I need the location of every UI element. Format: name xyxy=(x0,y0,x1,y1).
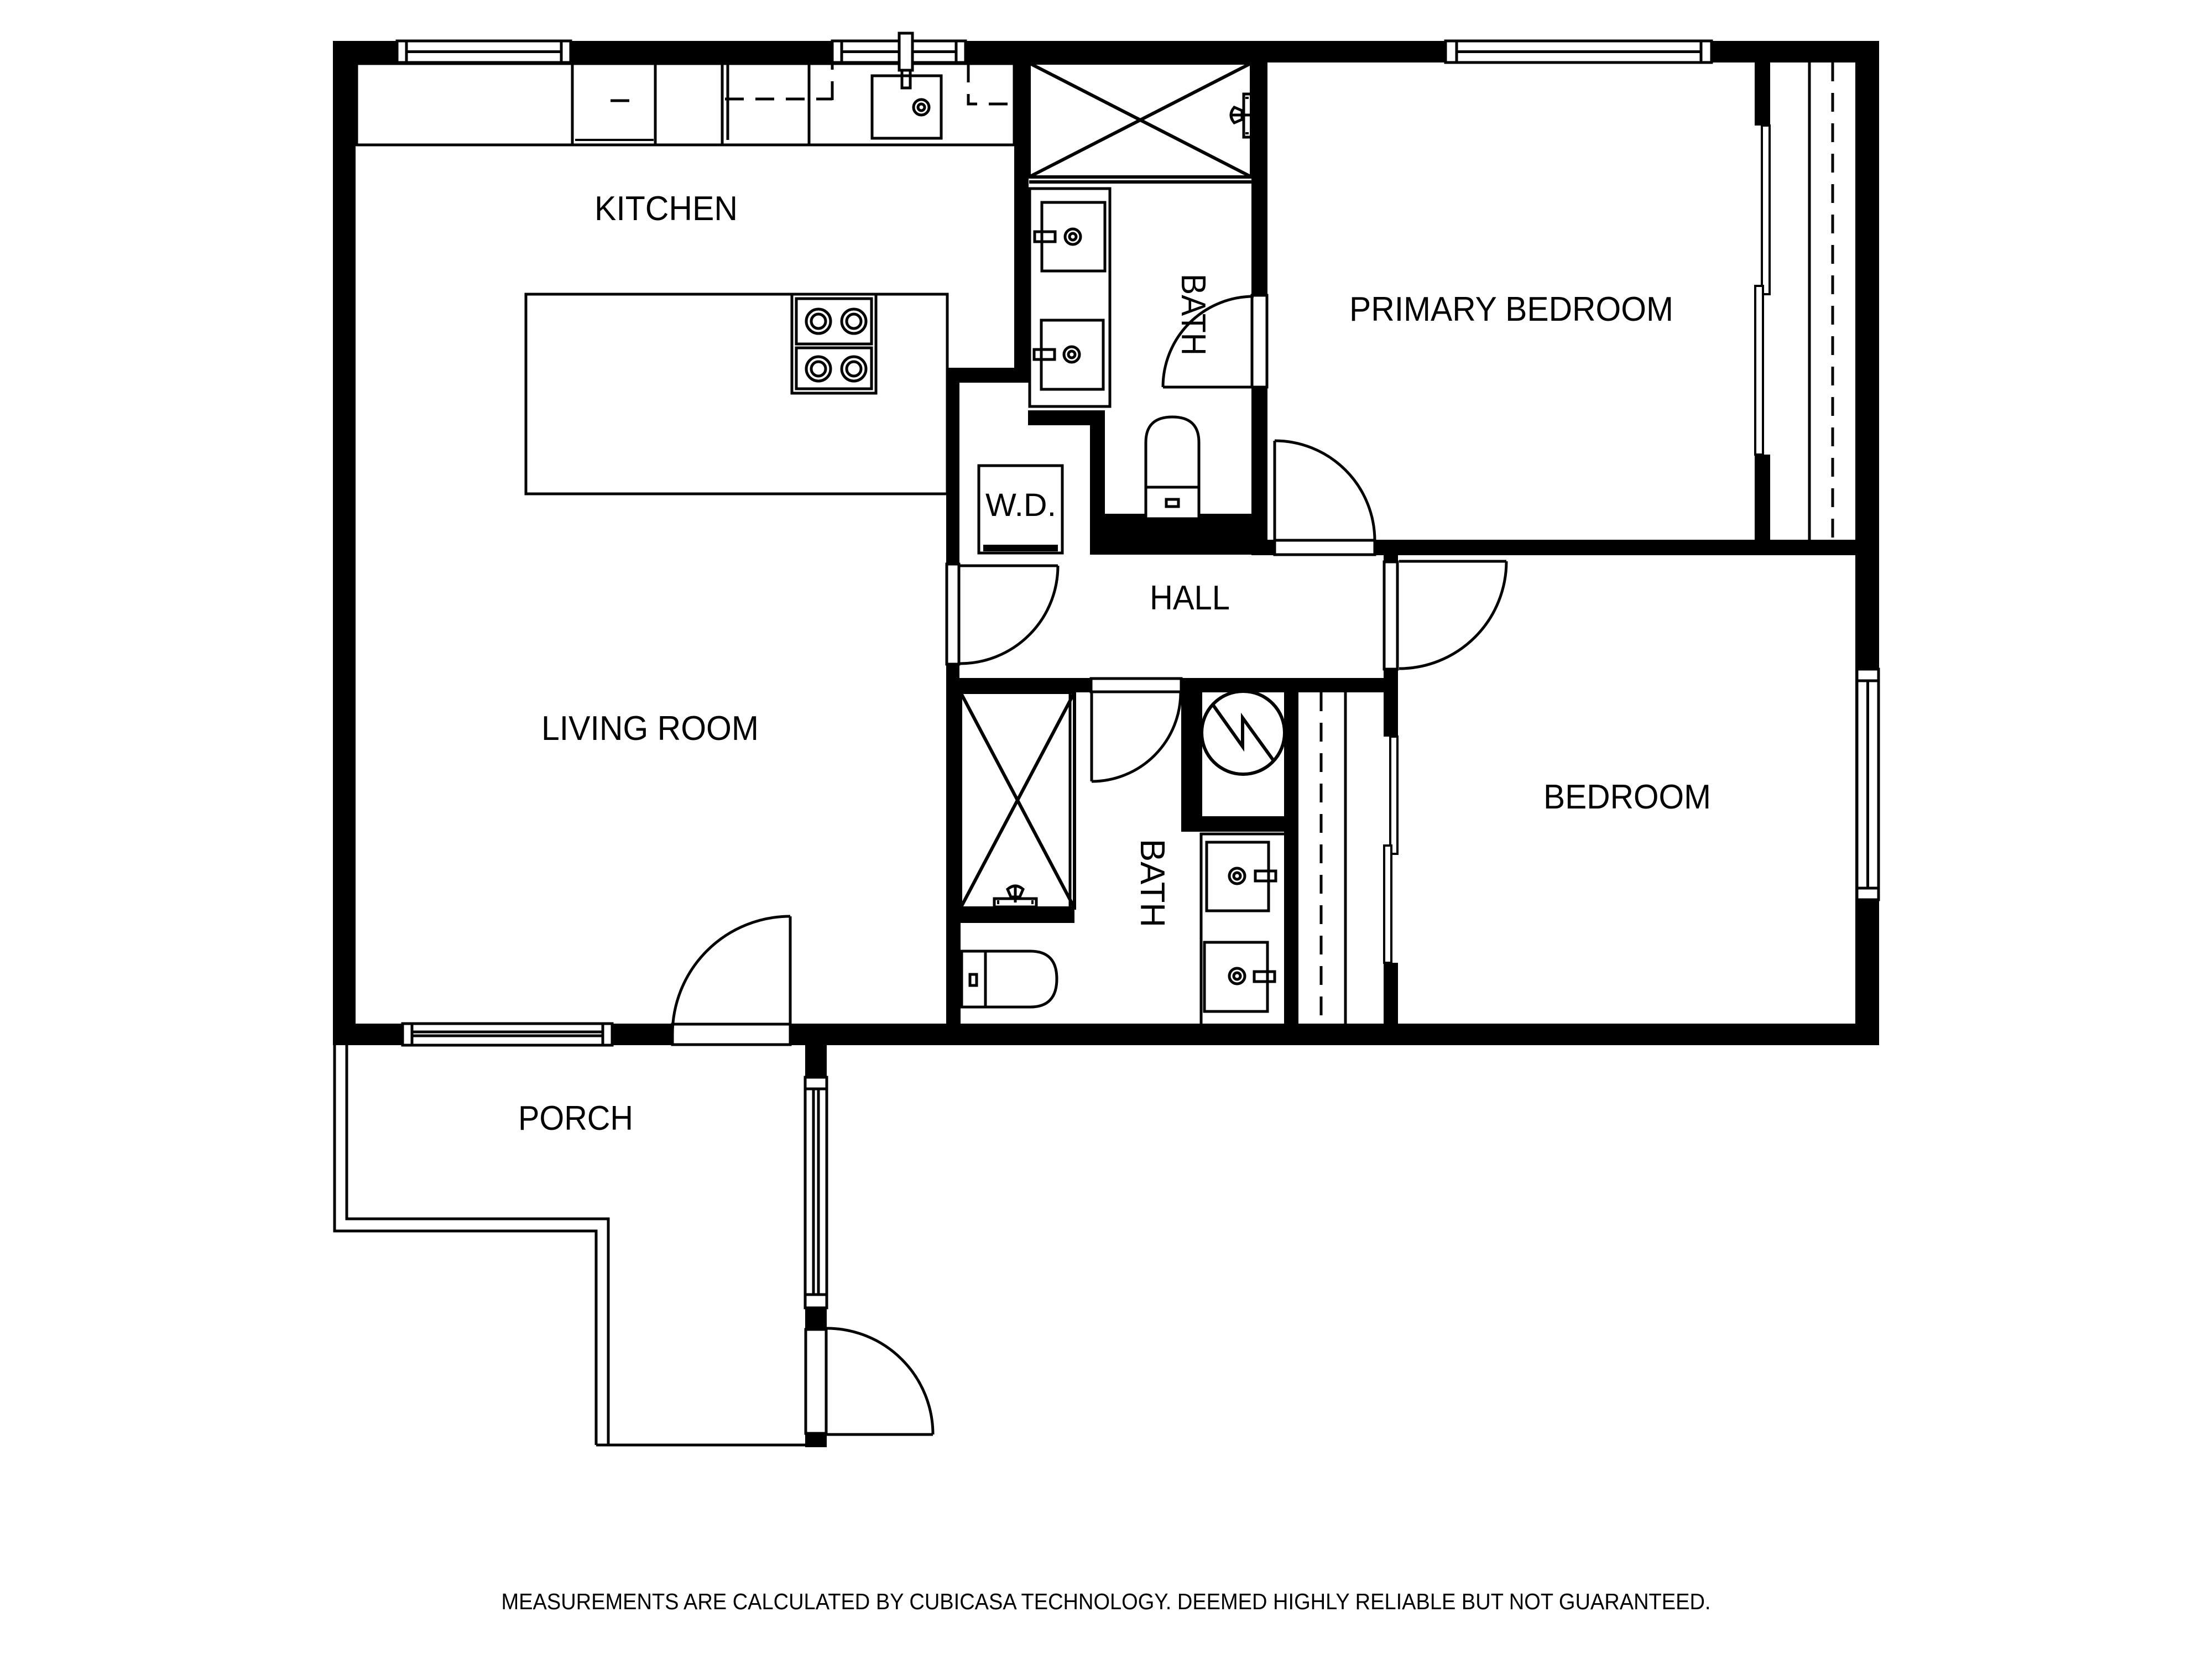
svg-text:BEDROOM: BEDROOM xyxy=(1543,778,1711,816)
svg-text:MEASUREMENTS ARE CALCULATED BY: MEASUREMENTS ARE CALCULATED BY CUBICASA … xyxy=(502,1589,1711,1614)
svg-text:HALL: HALL xyxy=(1150,579,1230,617)
svg-text:KITCHEN: KITCHEN xyxy=(594,190,738,228)
svg-text:BATH: BATH xyxy=(1133,839,1171,927)
svg-text:LIVING ROOM: LIVING ROOM xyxy=(541,709,759,748)
svg-text:BATH: BATH xyxy=(1174,274,1212,356)
svg-text:PRIMARY BEDROOM: PRIMARY BEDROOM xyxy=(1349,290,1673,328)
svg-text:W.D.: W.D. xyxy=(985,487,1056,523)
svg-text:PORCH: PORCH xyxy=(518,1099,633,1138)
